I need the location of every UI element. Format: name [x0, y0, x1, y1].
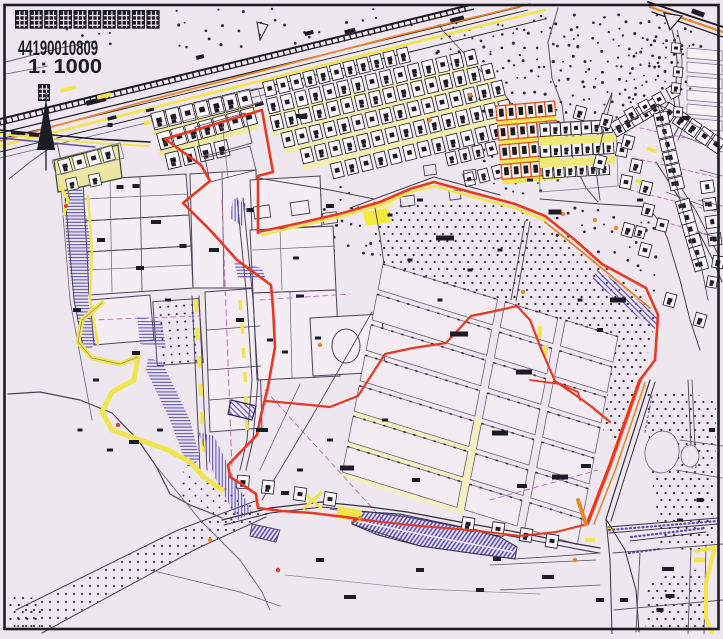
svg-text:1: 1000: 1: 1000	[28, 56, 102, 78]
